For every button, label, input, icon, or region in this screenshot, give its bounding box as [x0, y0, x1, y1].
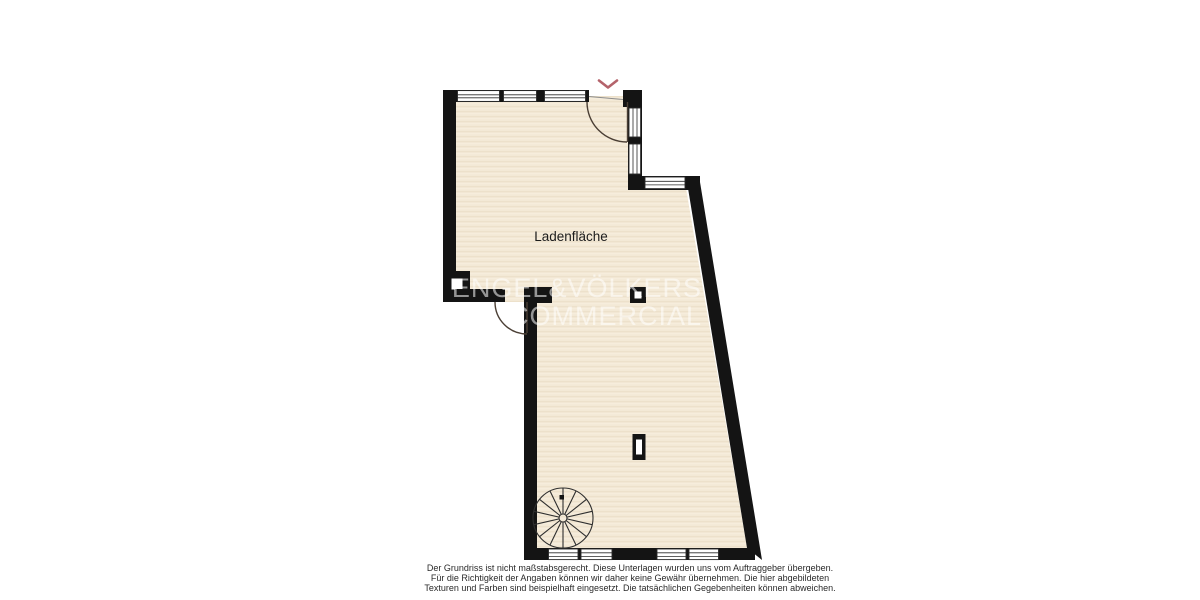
disclaimer-text: Der Grundriss ist nicht maßstabsgerecht.…: [330, 563, 930, 593]
window-right-1: [629, 108, 641, 137]
column-rect-core: [636, 440, 642, 455]
window-step: [645, 177, 685, 189]
window-top-1: [458, 91, 500, 102]
window-bottom-1b: [581, 549, 612, 560]
entrance-chevron-icon: [599, 81, 617, 88]
disclaimer-line-3: Texturen und Farben sind beispielhaft ei…: [330, 583, 930, 593]
watermark-line-2: COMMERCIAL: [430, 303, 702, 331]
window-bottom-1a: [549, 549, 579, 560]
window-bottom-2a: [657, 549, 686, 560]
stair-entry-tick: [560, 495, 565, 500]
window-top-2: [504, 91, 537, 102]
window-top-3: [545, 91, 586, 102]
disclaimer-line-2: Für die Richtigkeit der Angaben können w…: [330, 573, 930, 583]
floorplan-page: Ladenfläche ENGEL&VÖLKERS COMMERCIAL Der…: [0, 0, 1200, 600]
wall-left: [443, 90, 456, 302]
brand-watermark: ENGEL&VÖLKERS COMMERCIAL: [430, 275, 702, 330]
room-label: Ladenfläche: [506, 229, 636, 244]
window-bottom-2b: [689, 549, 719, 560]
watermark-line-1: ENGEL&VÖLKERS: [430, 275, 702, 303]
wall-right-upper: [628, 90, 642, 190]
window-right-2: [629, 144, 641, 174]
disclaimer-line-1: Der Grundriss ist nicht maßstabsgerecht.…: [330, 563, 930, 573]
